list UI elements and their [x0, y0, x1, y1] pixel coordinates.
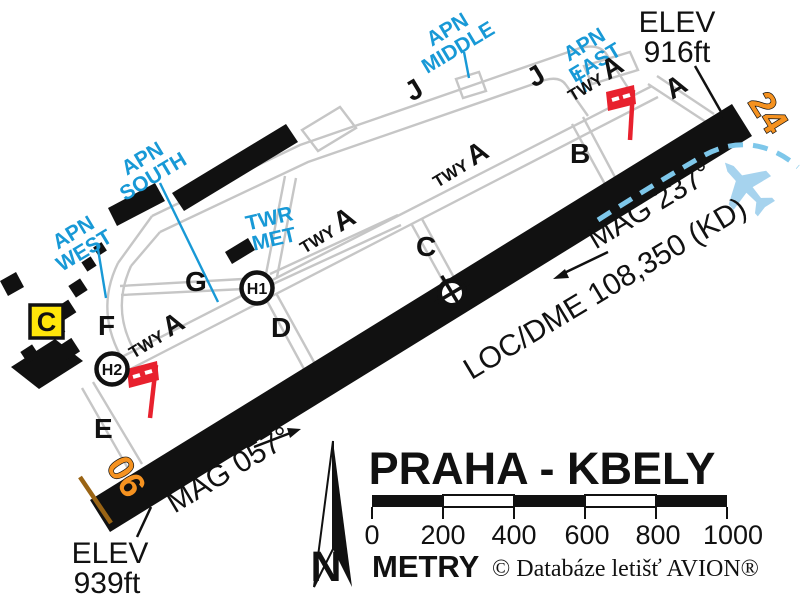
twy-a-label-2: TWYA: [292, 201, 361, 260]
elev-ne-line1: ELEV: [639, 6, 716, 39]
label-twy-e: E: [94, 413, 113, 444]
scale-tick-800: 800: [635, 520, 680, 550]
apron-south-block: [172, 124, 298, 211]
airport-chart-praha-kbely: C H1 H2 06 24 ELEV 916ft ELEV 939ft: [0, 0, 800, 600]
copyright-notice: © Databáze letišť AVION®: [492, 556, 759, 582]
label-twy-b: B: [570, 138, 590, 169]
sign-c: C: [30, 305, 63, 338]
label-twy-a-ne: A: [659, 68, 692, 105]
apron-west-label: APN WEST: [42, 207, 117, 276]
label-twy-g: G: [185, 266, 207, 297]
scale-tick-600: 600: [564, 520, 609, 550]
sign-c-label: C: [37, 307, 57, 337]
apron-middle-label: APN MIDDLE: [407, 0, 499, 78]
helipad-h1-label: H1: [247, 281, 268, 298]
scale-tick-1000: 1000: [703, 520, 763, 550]
label-twy-d: D: [271, 312, 291, 343]
scale-unit-label: METRY: [372, 549, 480, 584]
scale-tick-400: 400: [491, 520, 536, 550]
airport-title: PRAHA - KBELY: [369, 443, 716, 494]
scale-tick-0: 0: [364, 520, 379, 550]
label-twy-c: C: [416, 231, 436, 262]
elev-sw-line2: 939ft: [74, 567, 141, 600]
north-label: N: [310, 543, 341, 591]
taxiway-network: [82, 47, 714, 472]
scale-bar: 0 200 400 600 800 1000: [364, 495, 763, 550]
elev-ne-line2: 916ft: [644, 36, 711, 69]
north-arrow: N: [310, 441, 352, 591]
twy-prefix: TWY: [126, 326, 169, 362]
twy-j-outer: [152, 47, 630, 216]
helipad-h2-label: H2: [102, 362, 123, 379]
tower-building: [225, 238, 255, 264]
windsock-west: [127, 361, 159, 418]
helipad-h1: H1: [242, 273, 273, 304]
elev-ne-pointer: [695, 66, 724, 117]
twy-j-inner: [160, 79, 588, 232]
scale-tick-200: 200: [420, 520, 465, 550]
airport-diagram: C H1 H2 06 24 ELEV 916ft ELEV 939ft: [0, 0, 800, 600]
twy-g: [120, 279, 244, 295]
label-twy-f: F: [98, 310, 115, 341]
apron-west-block: [0, 272, 24, 296]
elev-sw-line1: ELEV: [72, 537, 149, 570]
helipad-h2: H2: [97, 354, 128, 385]
twy-prefix: TWY: [430, 155, 473, 191]
windsock-east: [606, 85, 636, 140]
twy-west-link: [118, 216, 160, 266]
